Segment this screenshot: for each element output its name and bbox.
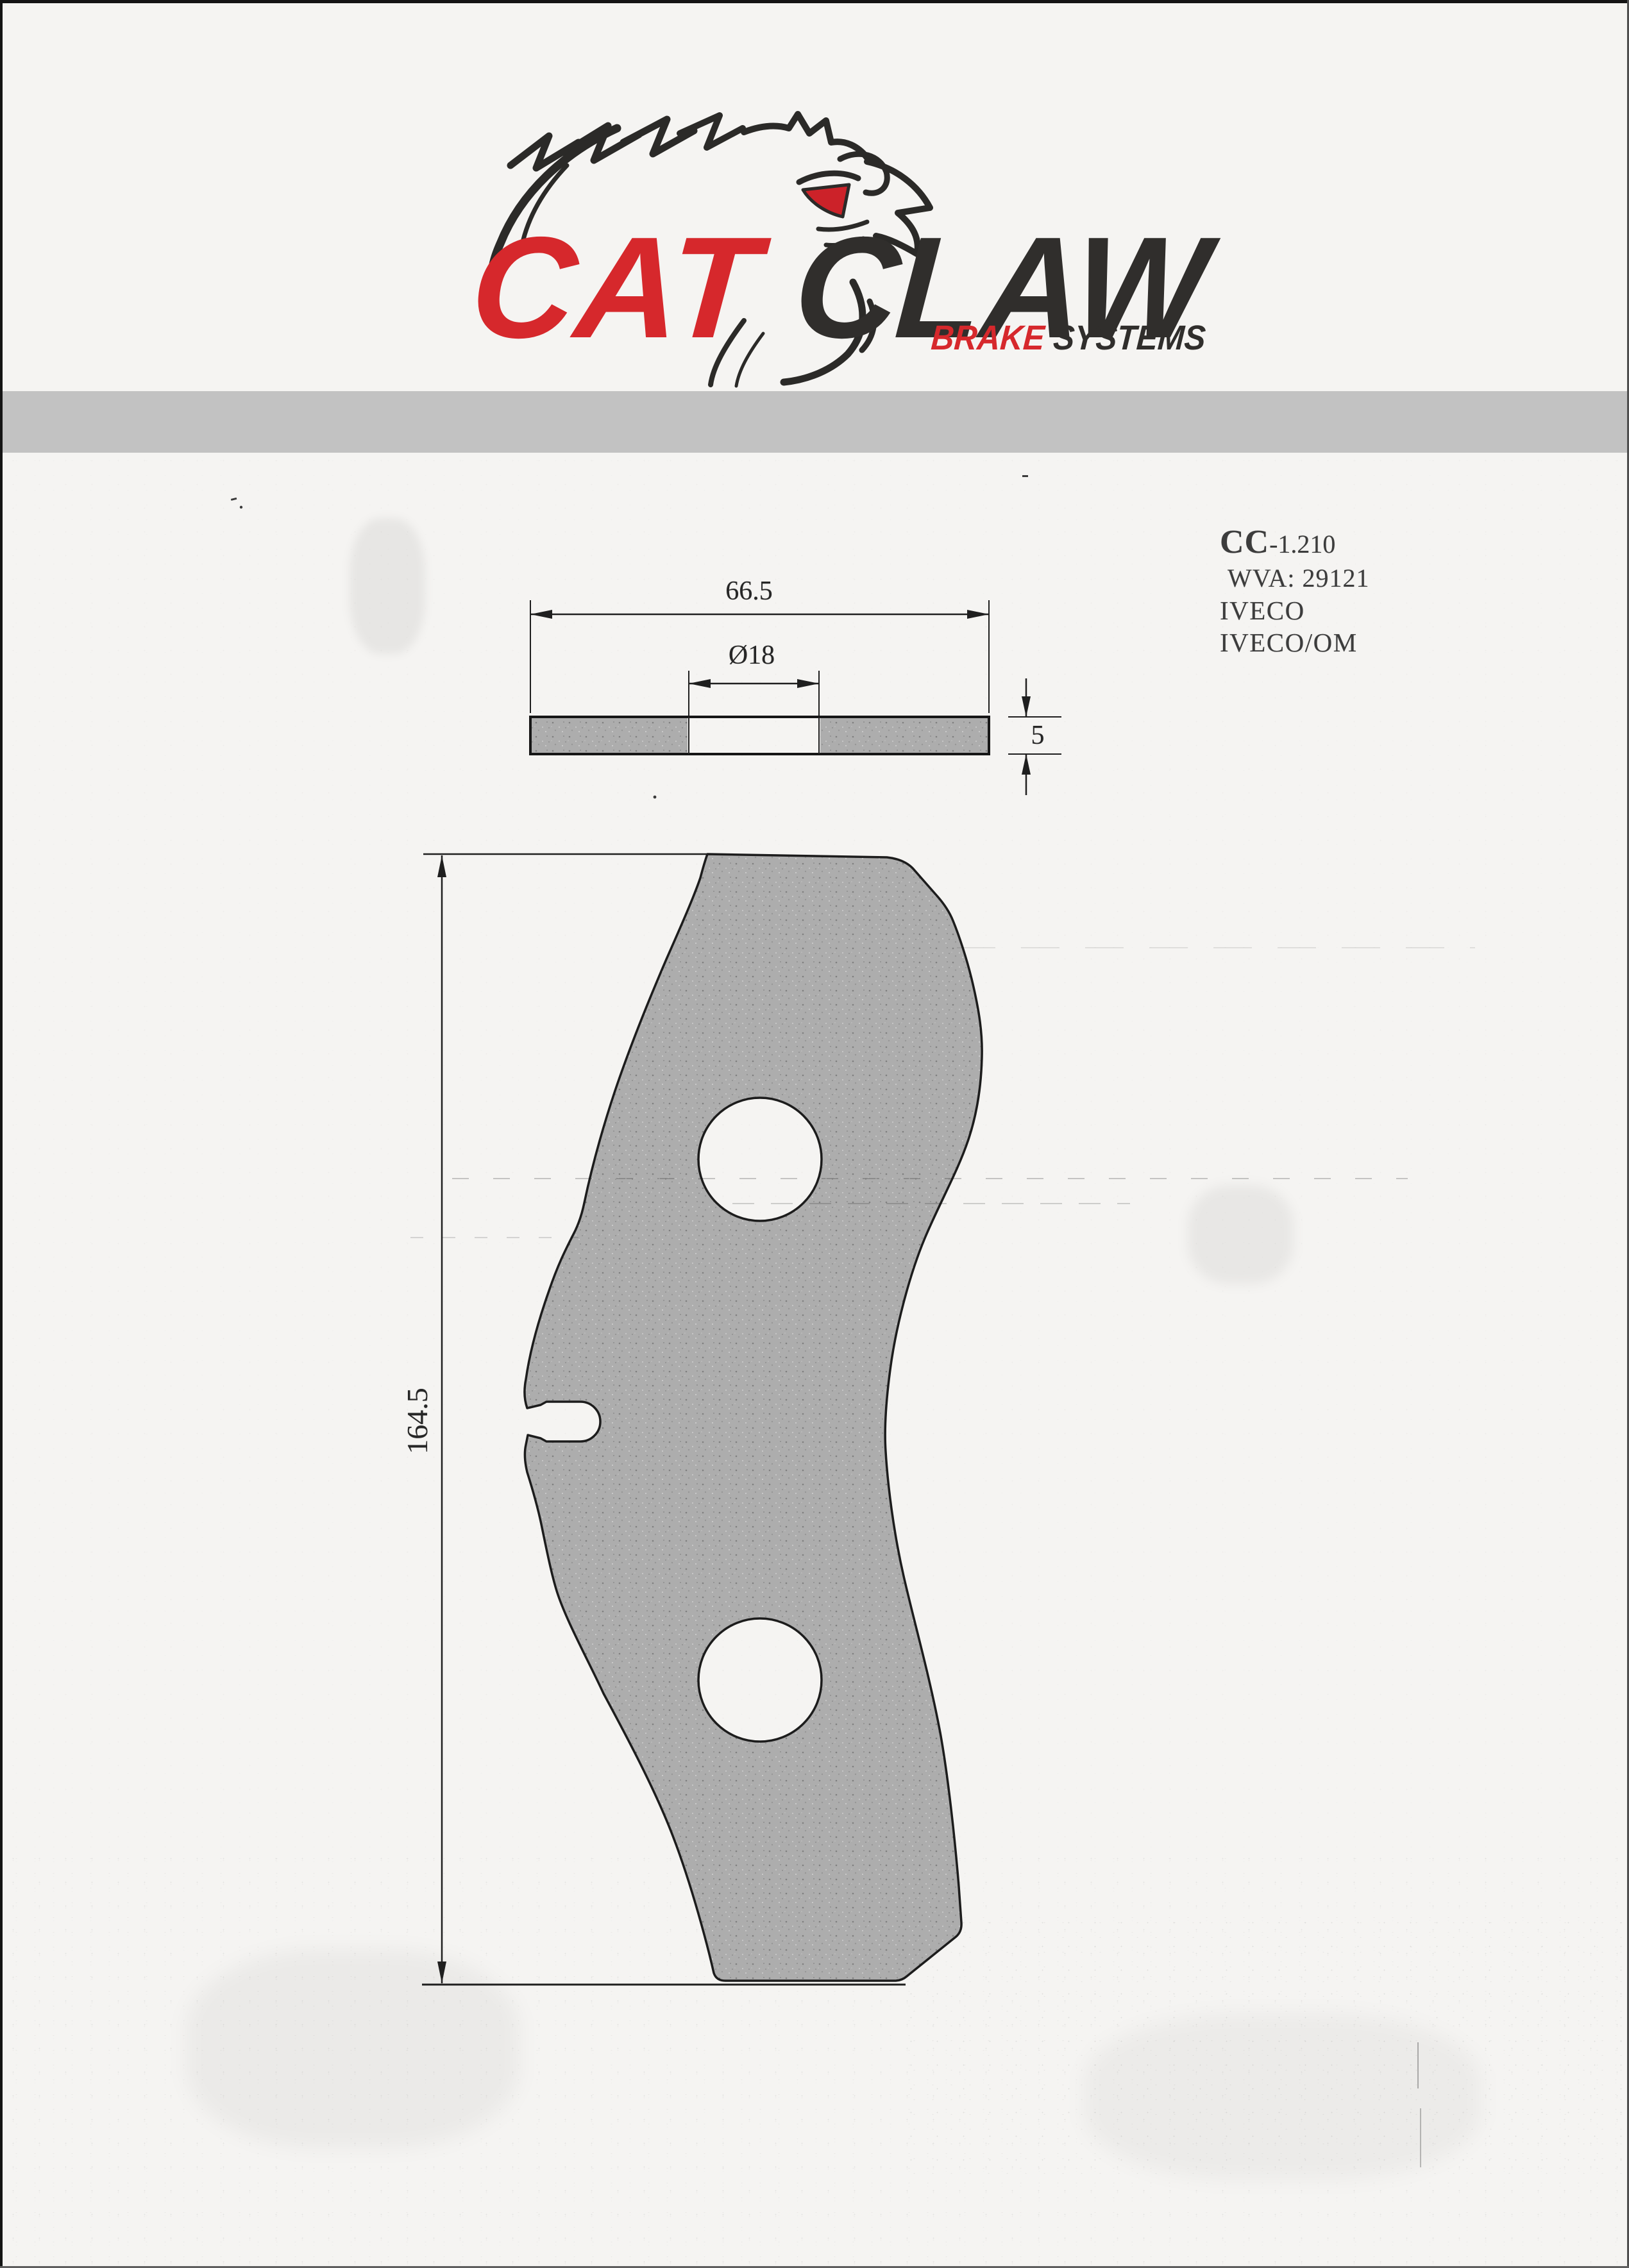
dim-hole-diameter	[689, 671, 819, 716]
part-code-prefix: CC	[1220, 524, 1269, 560]
part-application-2: IVECO/OM	[1220, 626, 1369, 659]
arrow-down-icon	[437, 1961, 446, 1983]
brake-pad-profile	[525, 854, 982, 1981]
logo-subtitle-systems: SYSTEMS	[1043, 319, 1207, 357]
arrow-right-icon	[797, 679, 819, 688]
part-info-block: CC-1.210 WVA: 29121 IVECO IVECO/OM	[1220, 525, 1369, 659]
part-code: CC-1.210	[1220, 525, 1369, 562]
cross-section-view	[530, 717, 989, 754]
arrow-right-icon	[967, 610, 989, 619]
brow-stroke	[799, 173, 858, 182]
arrow-left-icon	[530, 610, 552, 619]
arrow-up-icon	[437, 855, 446, 877]
pad-section-right	[820, 718, 988, 753]
arrow-left-icon	[689, 679, 711, 688]
part-code-suffix: -1.210	[1269, 530, 1335, 559]
arrow-up-icon	[1022, 754, 1031, 775]
logo-subtitle-brake: BRAKE	[930, 319, 1046, 357]
dim-label-hole-diameter: Ø18	[729, 642, 775, 669]
dim-label-height: 164.5	[403, 1388, 432, 1454]
dim-label-width: 66.5	[725, 578, 773, 605]
head-top-tufts	[744, 114, 867, 158]
claw-scratch-icon	[680, 115, 743, 147]
part-wva-number: WVA: 29121	[1220, 562, 1369, 594]
logo-word-claw-c: C	[790, 215, 904, 360]
pad-section-left	[532, 718, 688, 753]
logo-word-cat: CAT	[467, 215, 763, 360]
logo-subtitle: BRAKE SYSTEMS	[930, 321, 1206, 355]
scanned-datasheet-page: CAT C LAW BRAKE SYSTEMS CC-1.210 WVA: 29…	[0, 0, 1629, 2268]
arrow-down-icon	[1022, 696, 1031, 717]
part-application-1: IVECO	[1220, 594, 1369, 626]
dim-label-thickness: 5	[1031, 722, 1045, 749]
claw-scratch-icon	[623, 119, 694, 154]
